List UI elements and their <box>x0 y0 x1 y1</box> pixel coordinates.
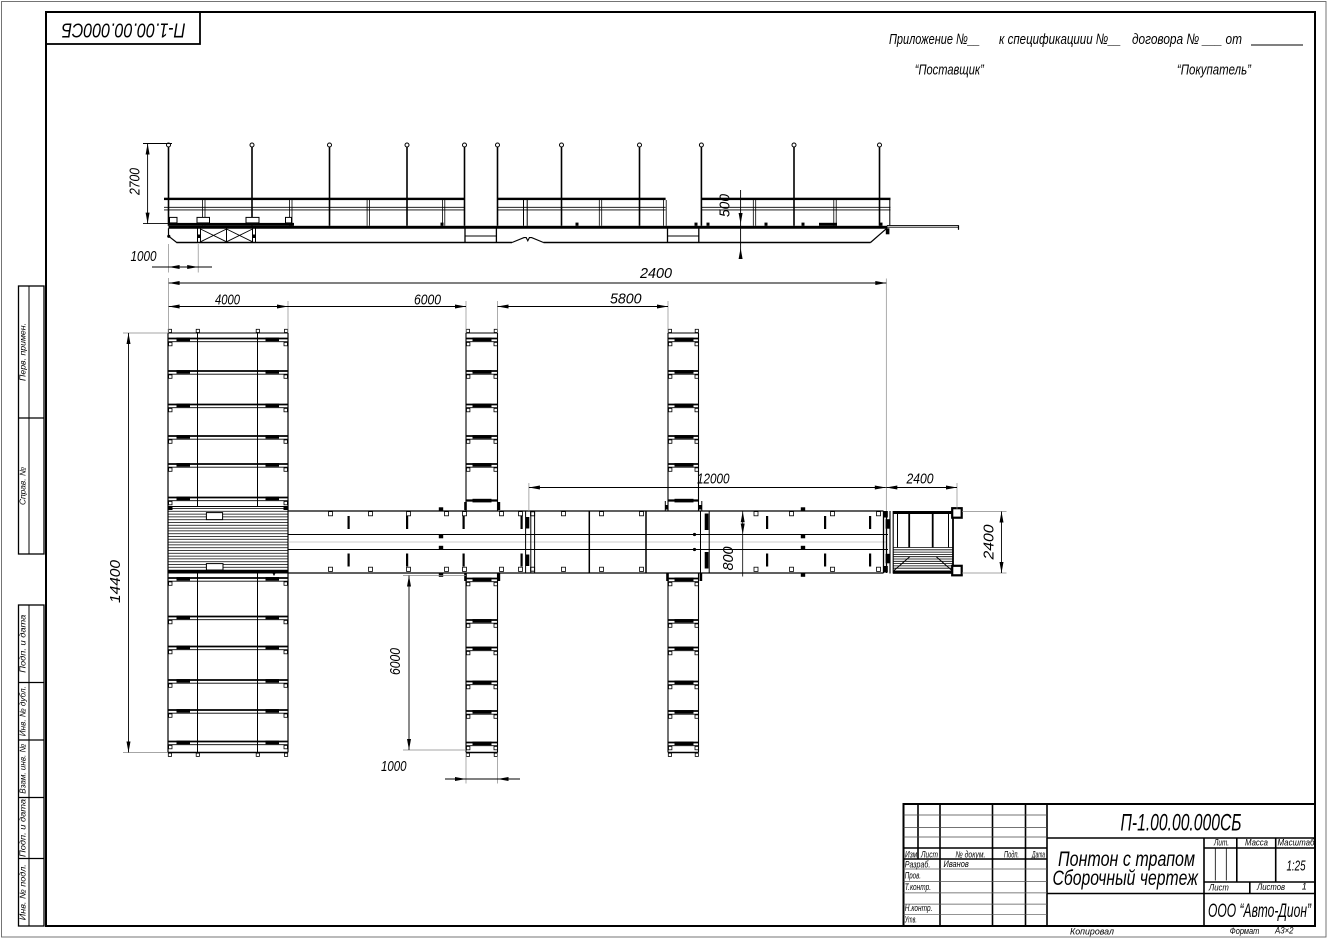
svg-text:1000: 1000 <box>131 248 158 265</box>
svg-text:6000: 6000 <box>387 647 404 675</box>
svg-text:Листов: Листов <box>1256 882 1285 892</box>
svg-text:Лит.: Лит. <box>1213 838 1229 848</box>
svg-text:4000: 4000 <box>215 292 240 309</box>
svg-text:1: 1 <box>1302 882 1307 892</box>
svg-text:“Поставщик”: “Поставщик” <box>915 62 985 79</box>
svg-text:Н.контр.: Н.контр. <box>905 903 933 913</box>
svg-text:Лист: Лист <box>920 850 938 860</box>
svg-text:Копировал: Копировал <box>1070 927 1115 938</box>
svg-text:1:25: 1:25 <box>1287 858 1306 875</box>
svg-text:Разраб.: Разраб. <box>905 860 931 870</box>
svg-text:Инв. № дубл.: Инв. № дубл. <box>18 686 28 736</box>
svg-text:Справ. №: Справ. № <box>18 467 28 505</box>
svg-text:5800: 5800 <box>610 291 642 308</box>
svg-text:П-1.00.00.000СБ: П-1.00.00.000СБ <box>62 19 186 41</box>
svg-text:2400: 2400 <box>981 524 998 561</box>
svg-text:№ докум.: № докум. <box>955 850 985 860</box>
svg-text:Иванов: Иванов <box>944 859 970 869</box>
svg-text:Изм.: Изм. <box>905 850 919 860</box>
svg-text:А3×2: А3×2 <box>1274 926 1294 937</box>
svg-text:Дата: Дата <box>1031 850 1045 860</box>
svg-text:Подп. и дата: Подп. и дата <box>18 614 28 672</box>
svg-text:П-1.00.00.000СБ: П-1.00.00.000СБ <box>1121 810 1242 837</box>
svg-text:к спецификациии №__: к спецификациии №__ <box>999 31 1121 48</box>
svg-text:2400: 2400 <box>906 471 934 488</box>
svg-text:Пров.: Пров. <box>905 871 921 881</box>
svg-text:Подп.: Подп. <box>1004 850 1019 860</box>
svg-text:500: 500 <box>717 193 734 217</box>
svg-text:Подп. и дата: Подп. и дата <box>18 799 28 857</box>
svg-text:6000: 6000 <box>414 292 442 309</box>
svg-text:договора № ___ от: договора № ___ от <box>1132 31 1242 48</box>
svg-text:Утв.: Утв. <box>904 914 917 924</box>
svg-text:Сборочный чертеж: Сборочный чертеж <box>1053 867 1200 890</box>
svg-text:Т.контр.: Т.контр. <box>905 882 931 892</box>
svg-text:800: 800 <box>720 546 737 571</box>
svg-text:12000: 12000 <box>697 471 730 488</box>
svg-text:“Покупатель”: “Покупатель” <box>1177 62 1252 79</box>
svg-text:1000: 1000 <box>381 758 407 775</box>
svg-text:Масштаб: Масштаб <box>1278 838 1316 848</box>
svg-text:2400: 2400 <box>639 265 673 282</box>
svg-text:Лист: Лист <box>1208 883 1229 893</box>
svg-text:Взам. инв. №: Взам. инв. № <box>18 744 28 794</box>
svg-text:ООО “Авто-Дион”: ООО “Авто-Дион” <box>1208 901 1312 922</box>
svg-text:Инв. № подл.: Инв. № подл. <box>18 864 28 920</box>
svg-text:14400: 14400 <box>107 559 124 603</box>
svg-text:2700: 2700 <box>127 167 144 195</box>
svg-text:Перв. примен.: Перв. примен. <box>18 323 28 381</box>
svg-text:Масса: Масса <box>1245 838 1268 848</box>
svg-text:Приложение №__: Приложение №__ <box>889 31 980 48</box>
svg-text:Формат: Формат <box>1230 926 1260 937</box>
